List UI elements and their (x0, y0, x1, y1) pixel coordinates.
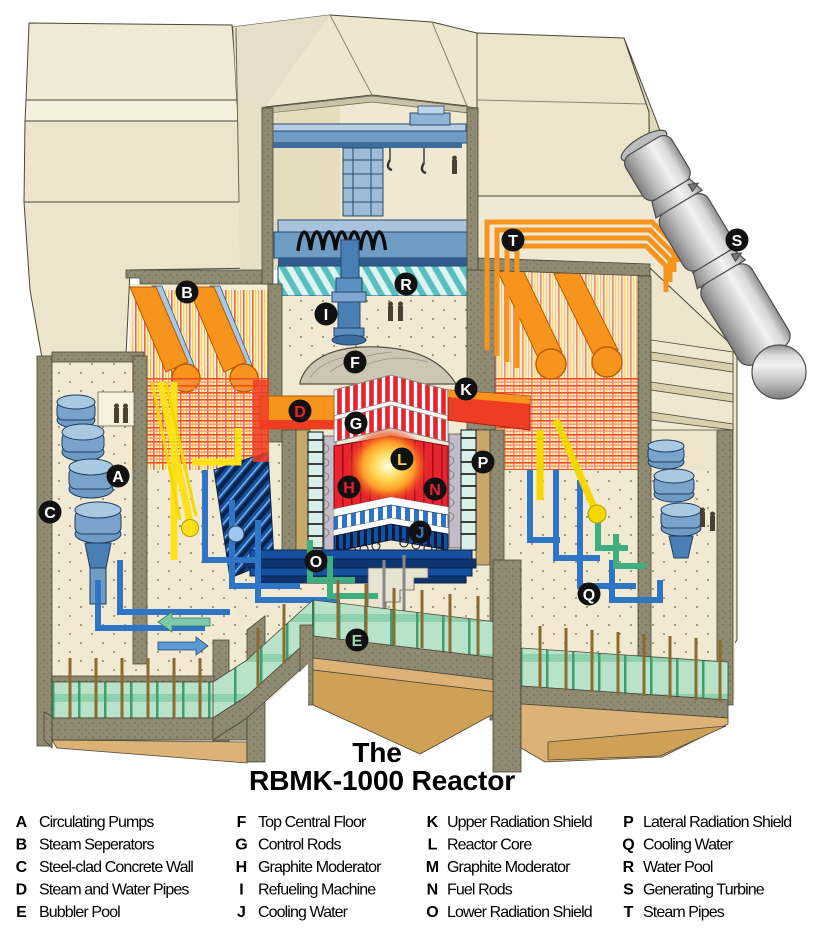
svg-text:Circulating Pumps: Circulating Pumps (39, 814, 154, 831)
svg-text:J: J (237, 904, 245, 921)
svg-text:I: I (239, 882, 243, 899)
svg-text:A: A (112, 469, 124, 486)
svg-text:P: P (623, 814, 634, 831)
svg-text:H: H (236, 859, 247, 876)
svg-text:E: E (16, 904, 27, 921)
svg-text:O: O (426, 904, 438, 921)
svg-text:C: C (44, 505, 56, 522)
svg-text:Cooling Water: Cooling Water (643, 837, 734, 854)
svg-text:Steam Seperators: Steam Seperators (39, 837, 154, 854)
svg-text:Fuel Rods: Fuel Rods (447, 882, 513, 899)
svg-text:N: N (427, 882, 438, 899)
svg-text:J: J (416, 525, 425, 542)
svg-text:RBMK-1000 Reactor: RBMK-1000 Reactor (249, 764, 515, 796)
svg-text:Top Central Floor: Top Central Floor (258, 814, 367, 831)
svg-text:Lower Radiation Shield: Lower Radiation Shield (447, 904, 592, 921)
svg-text:Bubbler Pool: Bubbler Pool (39, 904, 120, 921)
svg-text:B: B (181, 285, 193, 302)
svg-text:Cooling Water: Cooling Water (258, 904, 349, 921)
svg-text:S: S (623, 882, 634, 899)
svg-text:Graphite Moderator: Graphite Moderator (447, 859, 571, 876)
svg-text:K: K (460, 382, 472, 399)
svg-text:Control Rods: Control Rods (258, 837, 341, 854)
svg-text:D: D (294, 404, 306, 421)
svg-text:Upper Radiation Shield: Upper Radiation Shield (447, 814, 592, 831)
svg-text:P: P (478, 455, 489, 472)
svg-text:G: G (235, 837, 247, 854)
svg-text:Steam and Water Pipes: Steam and Water Pipes (39, 882, 189, 899)
svg-text:E: E (352, 633, 363, 650)
svg-text:Lateral Radiation Shield: Lateral Radiation Shield (643, 814, 791, 831)
svg-text:Reactor Core: Reactor Core (447, 837, 532, 854)
svg-text:O: O (310, 554, 322, 571)
svg-text:F: F (237, 814, 247, 831)
svg-text:K: K (427, 814, 439, 831)
svg-text:F: F (350, 355, 360, 372)
svg-text:Water Pool: Water Pool (643, 859, 713, 876)
svg-text:T: T (624, 904, 634, 921)
svg-text:D: D (16, 882, 27, 899)
svg-text:N: N (429, 482, 441, 499)
svg-text:L: L (397, 452, 407, 469)
svg-text:A: A (16, 814, 28, 831)
svg-text:S: S (732, 233, 743, 250)
svg-text:Q: Q (583, 587, 595, 604)
svg-text:G: G (350, 416, 362, 433)
svg-text:R: R (623, 859, 635, 876)
svg-text:Graphite Moderator: Graphite Moderator (258, 859, 382, 876)
svg-text:Steam Pipes: Steam Pipes (643, 904, 725, 921)
svg-text:Generating Turbine: Generating Turbine (643, 882, 765, 899)
svg-text:Steel-clad Concrete Wall: Steel-clad Concrete Wall (39, 859, 193, 876)
svg-text:R: R (400, 277, 412, 294)
svg-text:M: M (426, 859, 439, 876)
svg-text:T: T (508, 233, 518, 250)
svg-text:I: I (324, 307, 328, 324)
svg-text:H: H (343, 480, 355, 497)
svg-text:Q: Q (622, 837, 634, 854)
svg-text:B: B (16, 837, 27, 854)
svg-text:L: L (428, 837, 438, 854)
svg-text:C: C (16, 859, 28, 876)
svg-text:Refueling Machine: Refueling Machine (258, 882, 376, 899)
